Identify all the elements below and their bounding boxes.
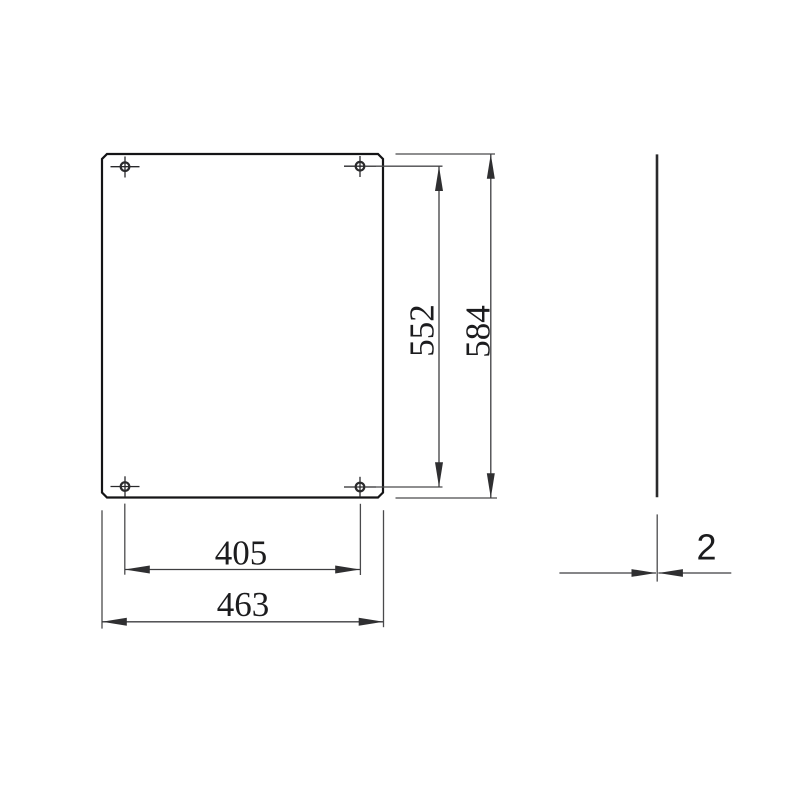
svg-text:463: 463: [217, 585, 270, 624]
svg-text:405: 405: [215, 534, 268, 573]
svg-text:2: 2: [696, 527, 716, 568]
svg-text:552: 552: [403, 304, 442, 357]
svg-text:584: 584: [459, 305, 498, 358]
